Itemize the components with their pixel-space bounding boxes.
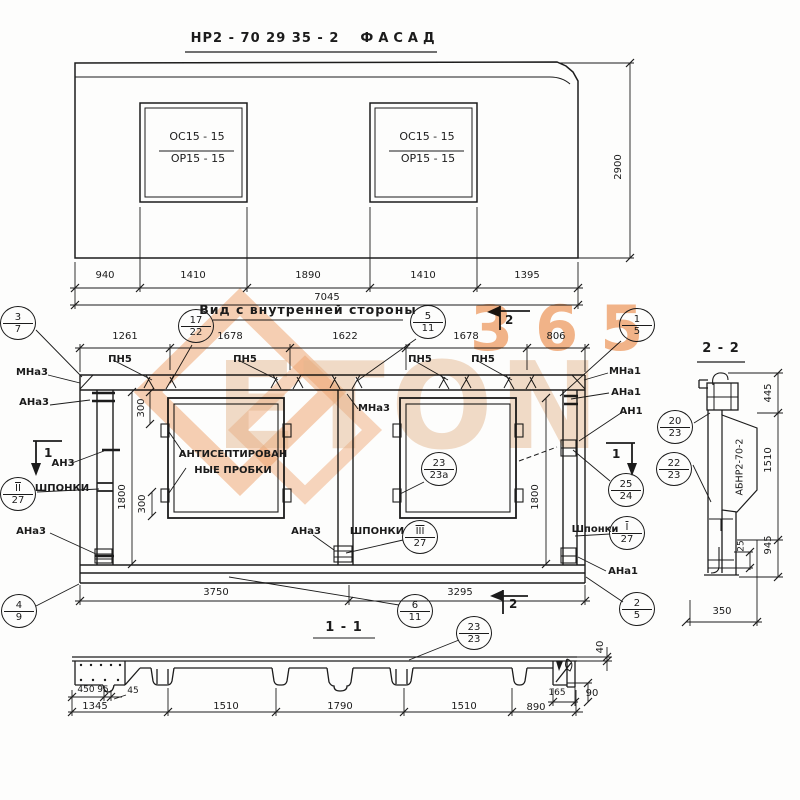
callout-bottom: 7 (3, 324, 32, 335)
label-pn5-1: ПН5 (108, 354, 132, 365)
dim-s11-45: 45 (127, 687, 138, 697)
dim-s22-1510: 1510 (764, 447, 774, 472)
callout-17-22: 17 22 (178, 309, 214, 343)
label-pn5-3: ПН5 (408, 354, 432, 365)
section-mark-2-bottom: 2 (509, 597, 517, 611)
callout-I-27: I 27 (609, 516, 645, 550)
section-2-2-dimensions (682, 369, 783, 626)
callout-bottom: 9 (4, 612, 33, 623)
stamp-abnr2-70-2: АБНР2-70-2 (735, 439, 745, 496)
callout-bottom: 5 (622, 610, 651, 621)
inner-view-dimensions (75, 320, 590, 605)
dim-s22-25: 25 (738, 540, 747, 551)
dim-facade-1890: 1890 (295, 270, 320, 281)
dim-s11-1790: 1790 (327, 701, 352, 712)
window-mark-top-left: ОС15 - 15 (169, 131, 224, 143)
label-plugs-line2: НЫЕ ПРОБКИ (194, 465, 271, 476)
dim-s11-1345: 1345 (82, 701, 107, 712)
dim-s22-945: 945 (764, 535, 774, 554)
section-mark-1-left: 1 (44, 446, 52, 460)
callout-4-9: 4 9 (1, 594, 37, 628)
callout-bottom: 22 (181, 327, 210, 338)
dim-facade-940: 940 (95, 270, 114, 281)
facade-panel (75, 52, 578, 258)
section-mark-2-top: 2 (505, 313, 513, 327)
callout-23-23: 23 23 (456, 616, 492, 650)
dim-s22-445: 445 (764, 383, 774, 402)
callout-top: 20 (660, 416, 689, 428)
label-mna3-middle: МНа3 (358, 403, 390, 414)
section-1-1-title: 1 - 1 (325, 620, 363, 635)
dim-s11-890: 890 (526, 702, 545, 713)
section-2-2-title: 2 - 2 (702, 341, 740, 356)
callout-bottom: 11 (400, 612, 429, 623)
dim-inner-1261: 1261 (112, 331, 137, 342)
callout-25-24: 25 24 (608, 473, 644, 507)
dim-facade-1410-right: 1410 (410, 270, 435, 281)
callout-bottom: 27 (612, 534, 641, 545)
callout-top: I (612, 522, 641, 534)
callout-22-23: 22 23 (656, 452, 692, 486)
section-1-1-profile (72, 638, 577, 692)
callout-top: 3 (3, 312, 32, 324)
label-ana3-left: АНа3 (19, 397, 49, 408)
callout-top: 4 (4, 600, 33, 612)
dim-inner-806: 806 (546, 331, 565, 342)
callout-23-23a: 23 23а (421, 452, 457, 486)
label-ana1-top: АНа1 (611, 387, 641, 398)
label-an3: АН3 (51, 458, 74, 469)
window-mark-top-right: ОС15 - 15 (399, 131, 454, 143)
callout-top: III (405, 526, 434, 538)
callout-5-11: 5 11 (410, 305, 446, 339)
dim-s11-1510-right: 1510 (451, 701, 476, 712)
callout-bottom: 23а (424, 470, 453, 481)
dim-facade-1410-left: 1410 (180, 270, 205, 281)
label-ana3-lower-left: АНа3 (16, 526, 46, 537)
callout-top: 17 (181, 315, 210, 327)
dim-plug-300-top: 300 (137, 398, 147, 417)
dim-s22-350: 350 (712, 606, 731, 617)
callout-bottom: 24 (611, 491, 640, 502)
callout-bottom: 23 (659, 470, 688, 481)
label-pn5-4: ПН5 (471, 354, 495, 365)
dim-inner-1800-left: 1800 (118, 484, 128, 509)
label-mna3-left: МНа3 (16, 367, 48, 378)
callout-top: 5 (413, 311, 442, 323)
callout-top: 23 (459, 622, 488, 634)
callout-bottom: 11 (413, 323, 442, 334)
callout-2-5: 2 5 (619, 592, 655, 626)
callout-bottom: 27 (405, 538, 434, 549)
callout-bottom: 5 (622, 326, 651, 337)
label-pn5-2: ПН5 (233, 354, 257, 365)
callout-bottom: 23 (660, 428, 689, 439)
callout-3-7: 3 7 (0, 306, 36, 340)
dim-s11-95: 95 (97, 686, 108, 696)
dim-s11-40: 40 (596, 641, 606, 654)
dim-s11-165: 165 (548, 689, 565, 699)
dim-s11-1510-left: 1510 (213, 701, 238, 712)
callout-6-11: 6 11 (397, 594, 433, 628)
callout-III-27: III 27 (402, 520, 438, 554)
label-plugs-line1: АНТИСЕПТИРОВАН (179, 449, 288, 460)
callout-top: II (3, 483, 32, 495)
callout-top: 6 (400, 600, 429, 612)
dim-inner-1678-left: 1678 (217, 331, 242, 342)
dim-inner-3295: 3295 (447, 587, 472, 598)
inner-view-title: Вид с внутренней стороны (199, 302, 416, 317)
callout-bottom: 27 (3, 495, 32, 506)
dim-s11-90: 90 (586, 688, 599, 699)
label-an1: АН1 (619, 406, 642, 417)
facade-title-word: ФАСАД (360, 31, 439, 46)
label-shponki-middle: ШПОНКИ (350, 526, 404, 537)
callout-20-23: 20 23 (657, 410, 693, 444)
window-mark-bottom-right: ОР15 - 15 (401, 153, 455, 165)
dim-plug-300-bottom: 300 (138, 494, 148, 513)
callout-top: 1 (622, 314, 651, 326)
dim-inner-3750: 3750 (203, 587, 228, 598)
dim-inner-1622: 1622 (332, 331, 357, 342)
callout-top: 2 (622, 598, 651, 610)
dim-facade-1395: 1395 (514, 270, 539, 281)
callout-1-5: 1 5 (619, 308, 655, 342)
callout-II-27: II 27 (0, 477, 36, 511)
dim-inner-1678-right: 1678 (453, 331, 478, 342)
section-2-2-profile (697, 362, 757, 575)
dim-s11-450: 450 (77, 686, 94, 696)
rebar-dots (80, 664, 121, 681)
facade-dimensions (70, 59, 634, 309)
facade-title-code: НР2 - 70 29 35 - 2 (191, 31, 340, 46)
callout-top: 22 (659, 458, 688, 470)
dim-facade-height-2900: 2900 (614, 154, 624, 179)
callout-top: 23 (424, 458, 453, 470)
inner-view-structure (80, 375, 585, 583)
section-mark-1-right: 1 (612, 447, 620, 461)
label-ana3-mid-bottom: АНа3 (291, 526, 321, 537)
dim-inner-1800-right: 1800 (531, 484, 541, 509)
label-ana1-bottom: АНа1 (608, 566, 638, 577)
label-shponki-left: ШПОНКИ (35, 483, 89, 494)
blueprint-canvas: ETON 365 НР2 - 70 29 35 - 2 ФАСАД ОС15 -… (0, 0, 800, 800)
drawing-linework (0, 0, 800, 800)
plug-tabs (161, 424, 523, 502)
callout-bottom: 23 (459, 634, 488, 645)
callout-top: 25 (611, 479, 640, 491)
window-mark-bottom-left: ОР15 - 15 (171, 153, 225, 165)
label-mna1: МНа1 (609, 366, 641, 377)
